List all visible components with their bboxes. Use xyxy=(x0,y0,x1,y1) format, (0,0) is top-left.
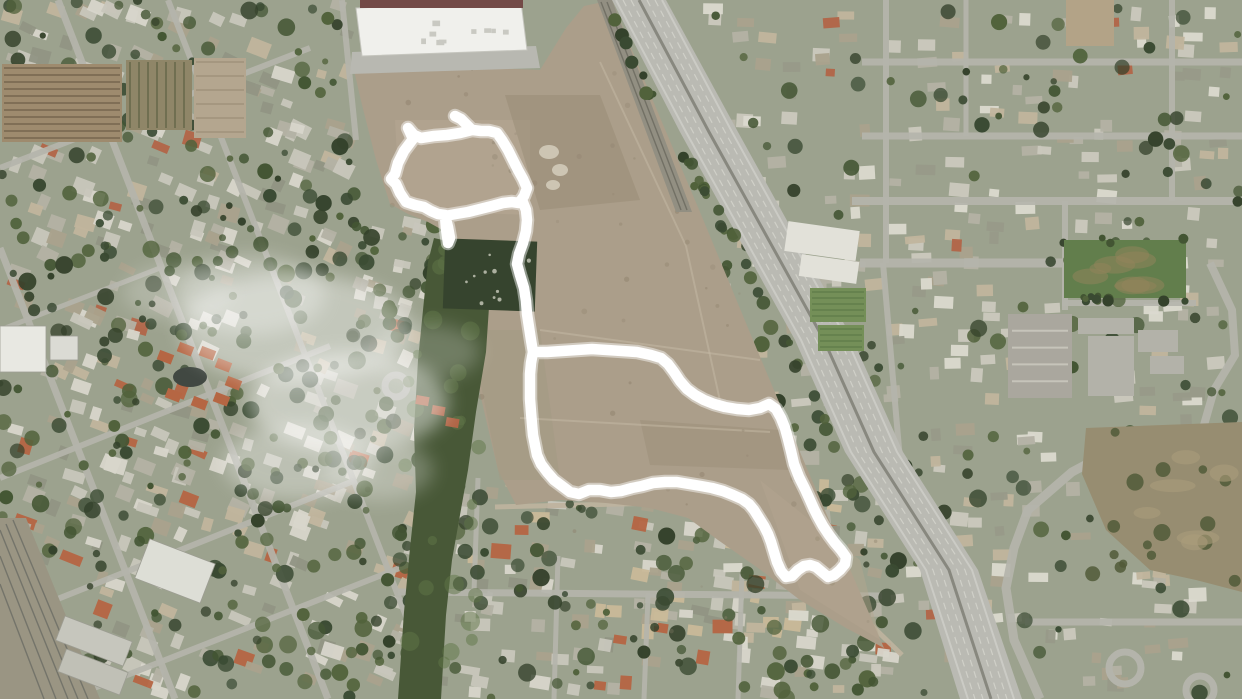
satellite-map xyxy=(0,0,1242,699)
aerial-imagery xyxy=(0,0,1242,699)
